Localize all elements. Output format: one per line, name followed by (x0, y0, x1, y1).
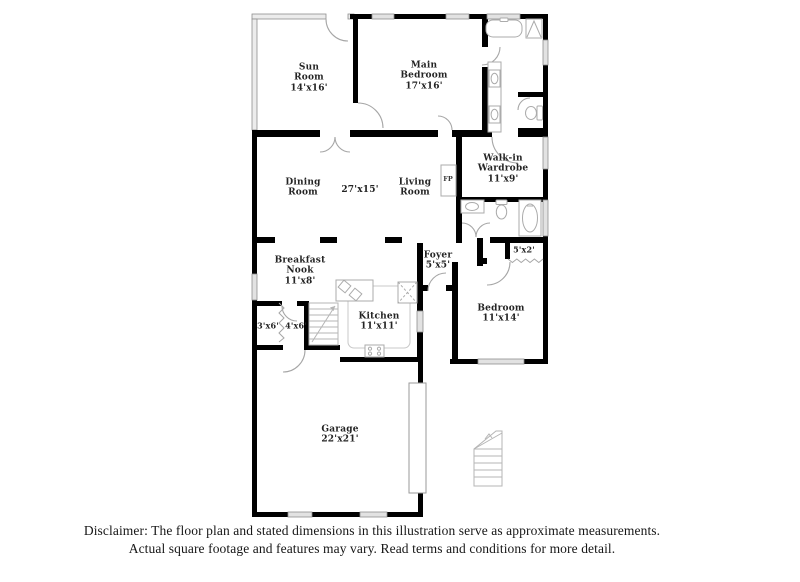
shower-icon (526, 19, 542, 38)
toilet-icon-hallbath (496, 200, 507, 219)
fireplace-label: FP (443, 176, 453, 184)
room-label-bedroom: Bedroom11'x14' (477, 304, 524, 325)
disclaimer-text: Disclaimer: The floor plan and stated di… (62, 522, 682, 557)
stove-icon (365, 345, 384, 357)
exterior-stairs-icon (474, 431, 502, 486)
staircase-icon (309, 303, 338, 345)
toilet-icon-main (526, 106, 543, 120)
closet-curtain-edge (508, 259, 543, 263)
disclaimer-line-2: Actual square footage and features may v… (62, 540, 682, 558)
room-label-walk-in-wardrobe: Walk-inWardrobe11'x9' (478, 153, 529, 184)
room-label-living-dining-dims: 27'x15' (341, 185, 378, 195)
room-label-closet-4x6: 4'x6' (285, 321, 307, 330)
room-label-living-room: LivingRoom (399, 178, 431, 199)
room-label-kitchen: Kitchen11'x11' (358, 312, 399, 333)
room-label-dining-room: DiningRoom (285, 178, 320, 199)
floorplan-page: SunRoom14'x16' MainBedroom17'x16' Walk-i… (0, 0, 800, 582)
kitchen-island-icon (336, 280, 373, 301)
room-label-main-bedroom: MainBedroom17'x16' (400, 60, 447, 91)
disclaimer-line-1: Disclaimer: The floor plan and stated di… (62, 522, 682, 540)
room-label-closet-3x6: 3'x6' (257, 321, 279, 330)
room-label-sun-room: SunRoom14'x16' (290, 62, 327, 93)
sink-icon-hallbath (461, 200, 484, 213)
accordion-door (279, 303, 284, 342)
room-label-foyer: Foyer5'x5' (424, 251, 453, 272)
pantry-icon (398, 282, 417, 303)
double-vanity-icon (488, 62, 501, 132)
bathtub-icon (486, 18, 522, 37)
garage-door (409, 383, 426, 493)
shower-stall-icon (519, 200, 541, 236)
room-label-breakfast-nook: BreakfastNook11'x8' (275, 255, 326, 286)
room-label-closet-5x2: 5'x2' (513, 245, 535, 254)
room-label-garage: Garage22'x21' (321, 425, 358, 446)
